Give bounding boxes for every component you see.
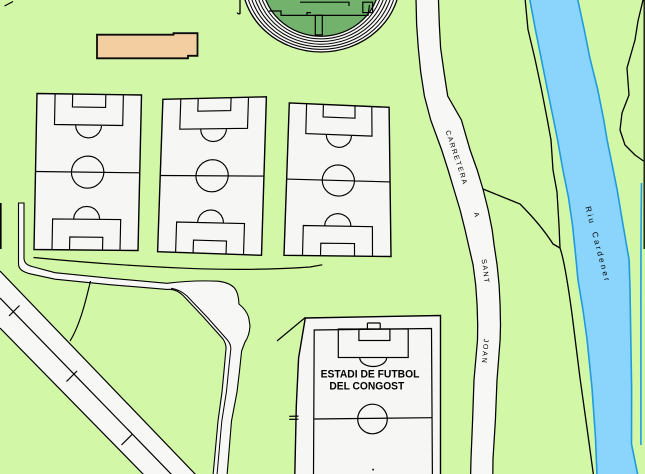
svg-text:ESTADI DE FUTBOL: ESTADI DE FUTBOL [321, 368, 420, 380]
svg-text:DEL CONGOST: DEL CONGOST [329, 381, 404, 393]
